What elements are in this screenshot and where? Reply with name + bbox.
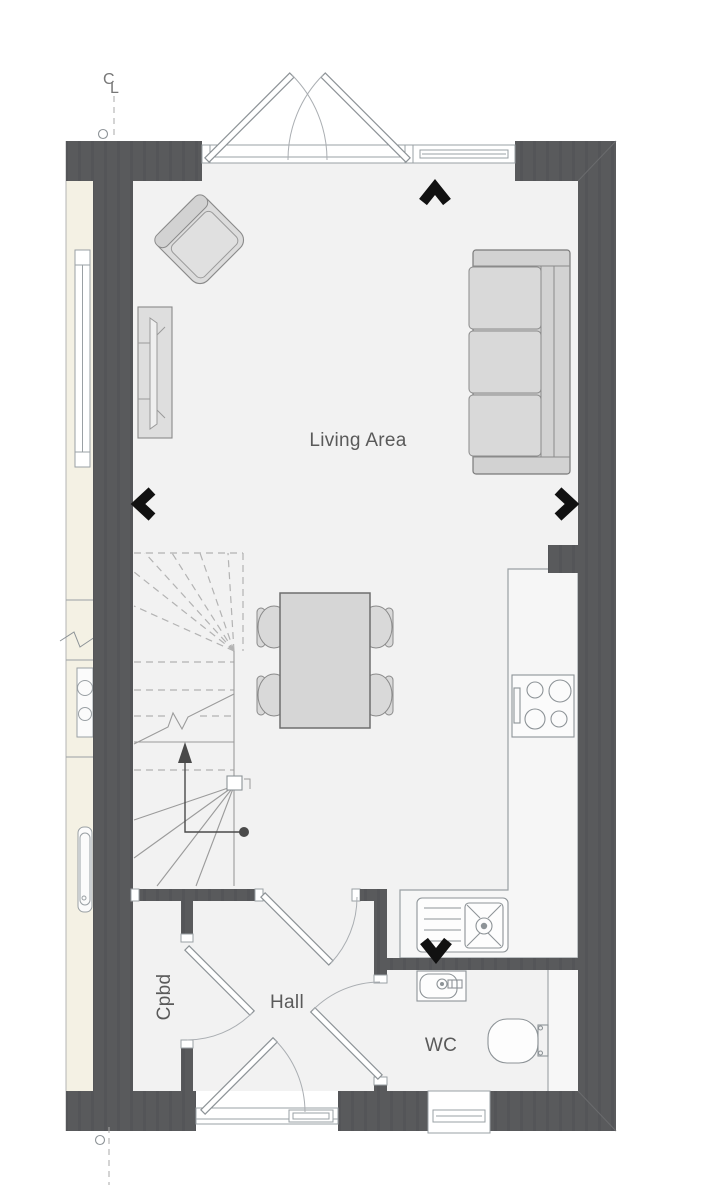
floor-plan: C L Living Area Hall Cpbd WC	[0, 0, 704, 1200]
bottom-wall-mid	[338, 1091, 428, 1131]
bottom-wall-left	[66, 1091, 196, 1131]
wc-duct-floor	[548, 970, 578, 1091]
centreline-marker-top: C L	[99, 71, 120, 139]
party-wall	[93, 141, 133, 1131]
top-wall-left	[66, 141, 202, 181]
newel-post	[227, 776, 242, 790]
kitchen-wc-wall	[387, 958, 578, 970]
wash-basin	[417, 971, 466, 1001]
hob	[512, 675, 574, 737]
hall-top-wall	[139, 889, 255, 901]
tv-unit	[138, 307, 172, 438]
centreline-l: L	[110, 80, 119, 97]
neighbor-hob	[77, 668, 93, 737]
label-wc: WC	[425, 1035, 457, 1056]
french-doors	[202, 73, 413, 163]
dining-table	[280, 593, 370, 728]
wc-window	[428, 1091, 490, 1133]
tv	[150, 318, 157, 429]
label-cupboard: Cpbd	[154, 974, 175, 1021]
centreline-marker-bottom	[96, 1127, 110, 1185]
french-door-threshold	[202, 145, 413, 163]
floor-plan-page: C L Living Area Hall Cpbd WC	[0, 0, 704, 1200]
label-living-area: Living Area	[309, 430, 406, 451]
front-sidelight	[289, 1110, 333, 1122]
right-wall	[578, 141, 616, 1131]
label-hall: Hall	[270, 992, 304, 1013]
hall-wc-wall	[374, 889, 387, 983]
living-window	[413, 145, 515, 163]
kitchen-wall-stub	[548, 545, 578, 573]
sofa	[469, 250, 570, 474]
